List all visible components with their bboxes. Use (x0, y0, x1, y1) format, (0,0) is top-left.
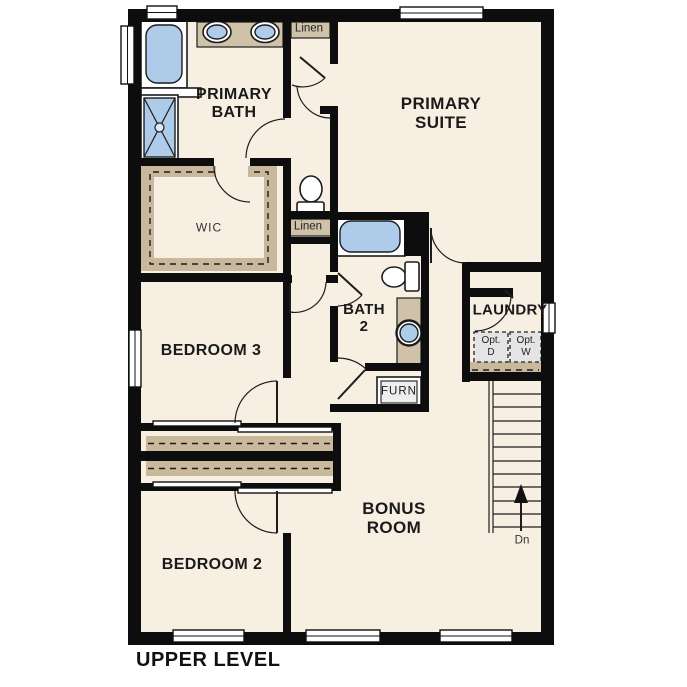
room-label-wic: WIC (196, 221, 222, 234)
primary-shower (141, 95, 178, 160)
window (173, 630, 244, 642)
window (129, 330, 141, 387)
room-label-primary-suite: PRIMARY SUITE (401, 94, 482, 132)
page-title: UPPER LEVEL (136, 649, 280, 672)
window (400, 7, 483, 19)
room-label-primary-bath: PRIMARY BATH (196, 86, 272, 122)
water-closet-toilet (297, 176, 324, 213)
floor-plan: PRIMARY BATH PRIMARY SUITE WIC Linen Lin… (0, 0, 687, 687)
window (121, 26, 134, 84)
closet-label-linen-top: Linen (295, 23, 323, 36)
room-label-laundry: LAUNDRY (473, 303, 548, 320)
closet-label-linen-mid: Linen (294, 221, 322, 234)
window (147, 6, 177, 19)
window (306, 630, 380, 642)
room-label-bath2: BATH 2 (343, 302, 385, 336)
bath2-sink (397, 321, 422, 346)
stairs-down-label: Dn (515, 535, 530, 548)
appliance-label-opt-dryer: Opt. D (482, 335, 501, 359)
window (440, 630, 512, 642)
room-label-bedroom2: BEDROOM 2 (162, 556, 263, 574)
room-label-bedroom3: BEDROOM 3 (161, 342, 262, 360)
closet-label-furnace: FURN (381, 386, 417, 399)
floor-plan-drawing (0, 0, 687, 687)
appliance-label-opt-washer: Opt. W (517, 335, 536, 359)
bath2-tub (335, 216, 405, 256)
floor-area (128, 9, 554, 645)
room-label-bonus-room: BONUS ROOM (362, 499, 425, 537)
